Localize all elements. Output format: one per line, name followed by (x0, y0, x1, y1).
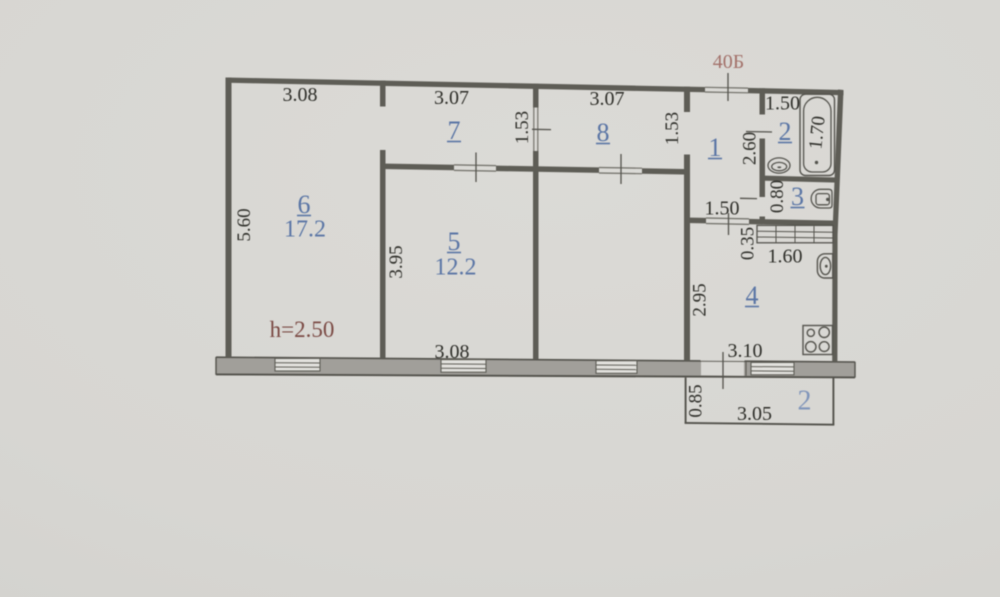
svg-text:40Б: 40Б (713, 51, 744, 73)
svg-text:3.07: 3.07 (434, 87, 469, 109)
svg-text:1.70: 1.70 (805, 115, 829, 150)
svg-text:3.05: 3.05 (737, 403, 772, 425)
svg-text:3.08: 3.08 (435, 341, 470, 363)
svg-text:5: 5 (448, 227, 461, 256)
svg-text:2.95: 2.95 (690, 283, 711, 316)
svg-text:7: 7 (448, 116, 461, 145)
svg-text:3.95: 3.95 (386, 245, 407, 278)
svg-text:0.35: 0.35 (738, 227, 759, 260)
svg-text:1.53: 1.53 (662, 112, 683, 145)
svg-text:1.50: 1.50 (765, 93, 800, 115)
svg-text:17.2: 17.2 (284, 217, 326, 243)
svg-text:3.08: 3.08 (283, 84, 318, 106)
svg-text:3.07: 3.07 (590, 88, 625, 110)
svg-text:2.60: 2.60 (740, 132, 761, 165)
svg-text:4: 4 (746, 281, 759, 310)
svg-text:5.60: 5.60 (234, 208, 255, 241)
svg-text:1.50: 1.50 (705, 198, 740, 220)
svg-text:1: 1 (709, 133, 722, 162)
svg-text:h=2.50: h=2.50 (270, 317, 335, 342)
svg-text:0.85: 0.85 (686, 384, 707, 417)
svg-text:1.53: 1.53 (512, 111, 533, 144)
svg-text:8: 8 (597, 118, 610, 147)
svg-text:1.60: 1.60 (768, 246, 803, 268)
svg-text:2: 2 (779, 117, 792, 146)
svg-text:12.2: 12.2 (435, 255, 477, 281)
svg-text:0.80: 0.80 (767, 180, 788, 213)
svg-text:3.10: 3.10 (728, 340, 763, 362)
svg-text:6: 6 (298, 190, 311, 219)
svg-text:2: 2 (798, 386, 812, 417)
svg-text:3: 3 (791, 182, 804, 211)
